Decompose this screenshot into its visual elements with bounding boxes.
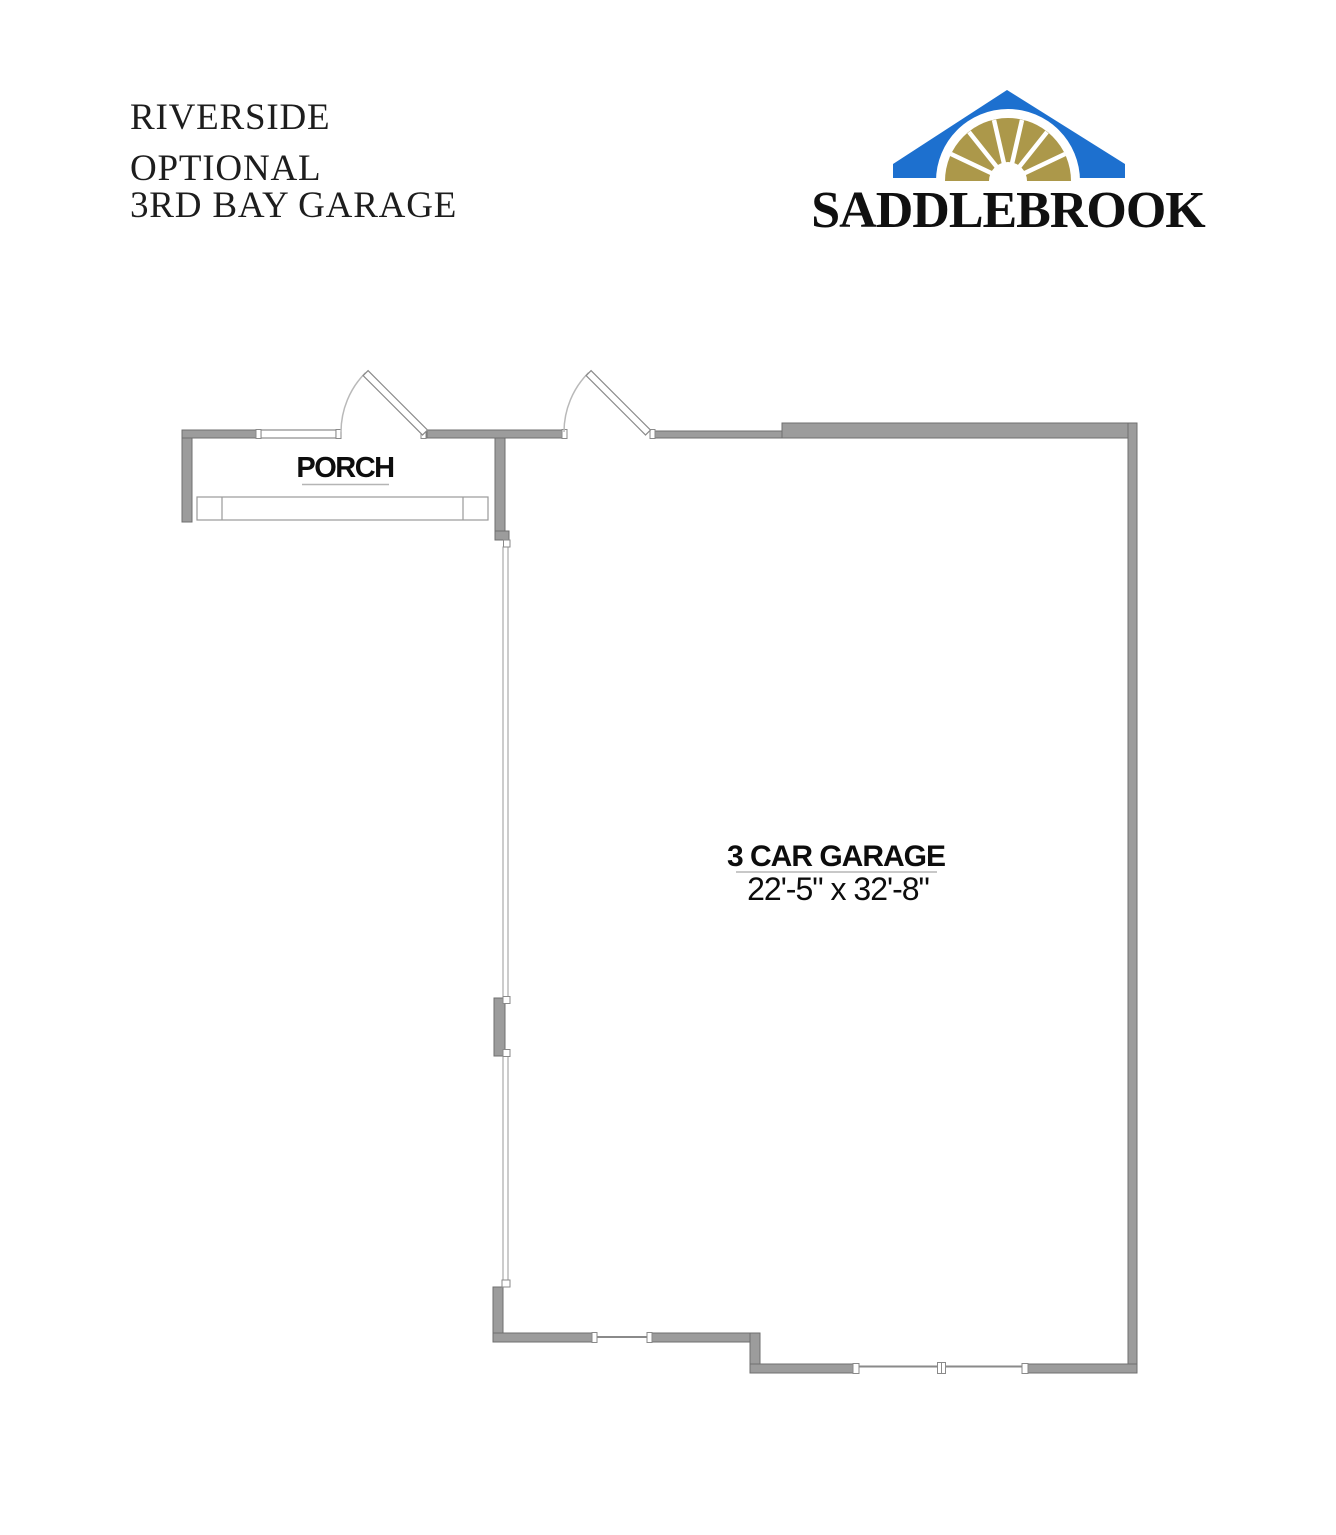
cap xyxy=(647,1333,652,1343)
porch-slab xyxy=(197,497,488,520)
porch-label: PORCH xyxy=(296,452,393,484)
wall-pilaster xyxy=(494,998,505,1056)
cap xyxy=(503,997,510,1004)
brand-name: SADDLEBROOK xyxy=(811,182,1206,239)
wall-bottom-b xyxy=(652,1333,760,1342)
cap xyxy=(336,430,341,439)
edge-line-upper xyxy=(503,547,508,998)
wall-bottom-a xyxy=(493,1333,592,1342)
wall-top-a xyxy=(182,430,256,438)
cap xyxy=(504,540,511,547)
wall-divider xyxy=(495,438,505,532)
cap xyxy=(256,430,261,439)
walls xyxy=(182,423,1137,1373)
brand-logo: SADDLEBROOK xyxy=(811,90,1206,239)
cap xyxy=(503,1050,510,1057)
door-leaf-icon xyxy=(363,371,427,435)
door-leaf-icon xyxy=(586,371,650,435)
wall-top-d xyxy=(782,423,1137,438)
edge-line-lower xyxy=(503,1056,508,1280)
wall-divider-foot xyxy=(495,531,509,540)
window-symbol xyxy=(261,430,336,438)
door-1 xyxy=(341,371,427,435)
wall-lower-a xyxy=(750,1364,855,1373)
porch-slab-outline xyxy=(197,497,488,520)
cap xyxy=(592,1333,597,1343)
cap xyxy=(1022,1364,1028,1374)
floor-plan-canvas: SADDLEBROOK xyxy=(0,0,1336,1535)
garage-dimensions: 22'-5" x 32'-8" xyxy=(747,871,929,907)
floor-plan-page: RIVERSIDE OPTIONAL 3RD BAY GARAGE SADDLE… xyxy=(0,0,1336,1535)
cap xyxy=(650,430,655,439)
wall-top-b xyxy=(427,430,562,438)
wall-lower-b xyxy=(1028,1364,1137,1373)
door-swing-arc-icon xyxy=(564,373,589,432)
door-2 xyxy=(564,371,650,435)
wall-top-c xyxy=(655,431,782,438)
cap xyxy=(502,1280,510,1287)
door-swing-arc-icon xyxy=(341,373,366,432)
cap xyxy=(853,1364,859,1374)
wall-right xyxy=(1128,423,1137,1373)
garage-label: 3 CAR GARAGE xyxy=(727,840,945,873)
edge-lines xyxy=(503,547,508,1280)
wall-porch-left xyxy=(182,430,192,522)
